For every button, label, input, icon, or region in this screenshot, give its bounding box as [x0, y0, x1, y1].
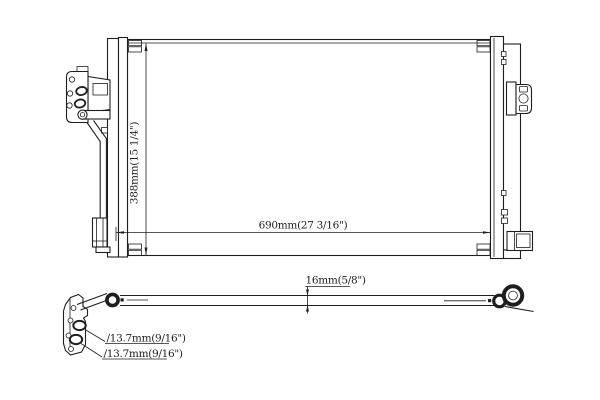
- bracket-hole-slot-upper: [520, 87, 528, 93]
- condenser-technical-drawing: 388mm(15 1/4") 690mm(27 3/16"): [0, 0, 600, 400]
- bracket-hole-slot-lower: [520, 106, 528, 112]
- bolt-hole: [67, 103, 72, 108]
- bolt-hole: [69, 77, 74, 82]
- dimension-height-label: 388mm(15 1/4"): [129, 122, 141, 205]
- fitting-tangent-line: [505, 307, 534, 312]
- side-fitting-bracket: [64, 294, 119, 356]
- inlet-outlet-bracket: [67, 67, 111, 123]
- front-view: 388mm(15 1/4") 690mm(27 3/16"): [67, 37, 533, 259]
- lower-pipe: [87, 121, 110, 253]
- port-hole-upper: [73, 321, 85, 330]
- side-right-fittings: [494, 286, 534, 311]
- mounting-bracket-top-right: [507, 82, 532, 115]
- lower-pipe-bracket: [93, 218, 108, 247]
- drawing-page: 388mm(15 1/4") 690mm(27 3/16"): [0, 0, 600, 400]
- bracket-hole-circle: [519, 94, 528, 103]
- bolt-hole: [68, 318, 73, 323]
- dimension-depth: 16mm(5/8"): [306, 275, 366, 314]
- centerline-dot-left: [121, 298, 124, 301]
- end-fitting-large-bore: [509, 291, 518, 300]
- port-callout-1: ∕13.7mm(9/16"): [85, 330, 186, 345]
- arrowhead-down: [306, 290, 309, 296]
- port-hole-lower: [70, 335, 82, 344]
- right-bottom-foot: [504, 250, 521, 259]
- centerline-dot-right: [488, 299, 491, 302]
- port-callout-1-label: ∕13.7mm(9/16"): [107, 333, 186, 345]
- bolt-hole: [69, 347, 74, 352]
- port-callout-2-label: ∕13.7mm(9/16"): [104, 348, 183, 360]
- left-header-tank: [119, 38, 128, 258]
- bolt-hole: [67, 91, 72, 96]
- dimension-width-label: 690mm(27 3/16"): [259, 220, 348, 232]
- right-header-tank: [491, 37, 504, 259]
- port-callout-2: ∕13.7mm(9/16"): [81, 344, 183, 361]
- stub-tube-end-hole: [80, 113, 84, 117]
- arrowhead-up: [306, 306, 309, 312]
- lower-pipe-foot: [96, 247, 110, 253]
- dimension-depth-label: 16mm(5/8"): [306, 275, 366, 287]
- bolt-hole: [71, 306, 76, 311]
- pipe-fitting-ring: [107, 294, 118, 305]
- left-side-plate: [108, 39, 119, 258]
- side-view: 16mm(5/8") ∕13.7mm(9/16") ∕13.7mm(9/16"): [64, 275, 534, 361]
- fitting-funnel-window: [93, 84, 108, 96]
- mounting-bracket-bottom-right: [507, 232, 533, 251]
